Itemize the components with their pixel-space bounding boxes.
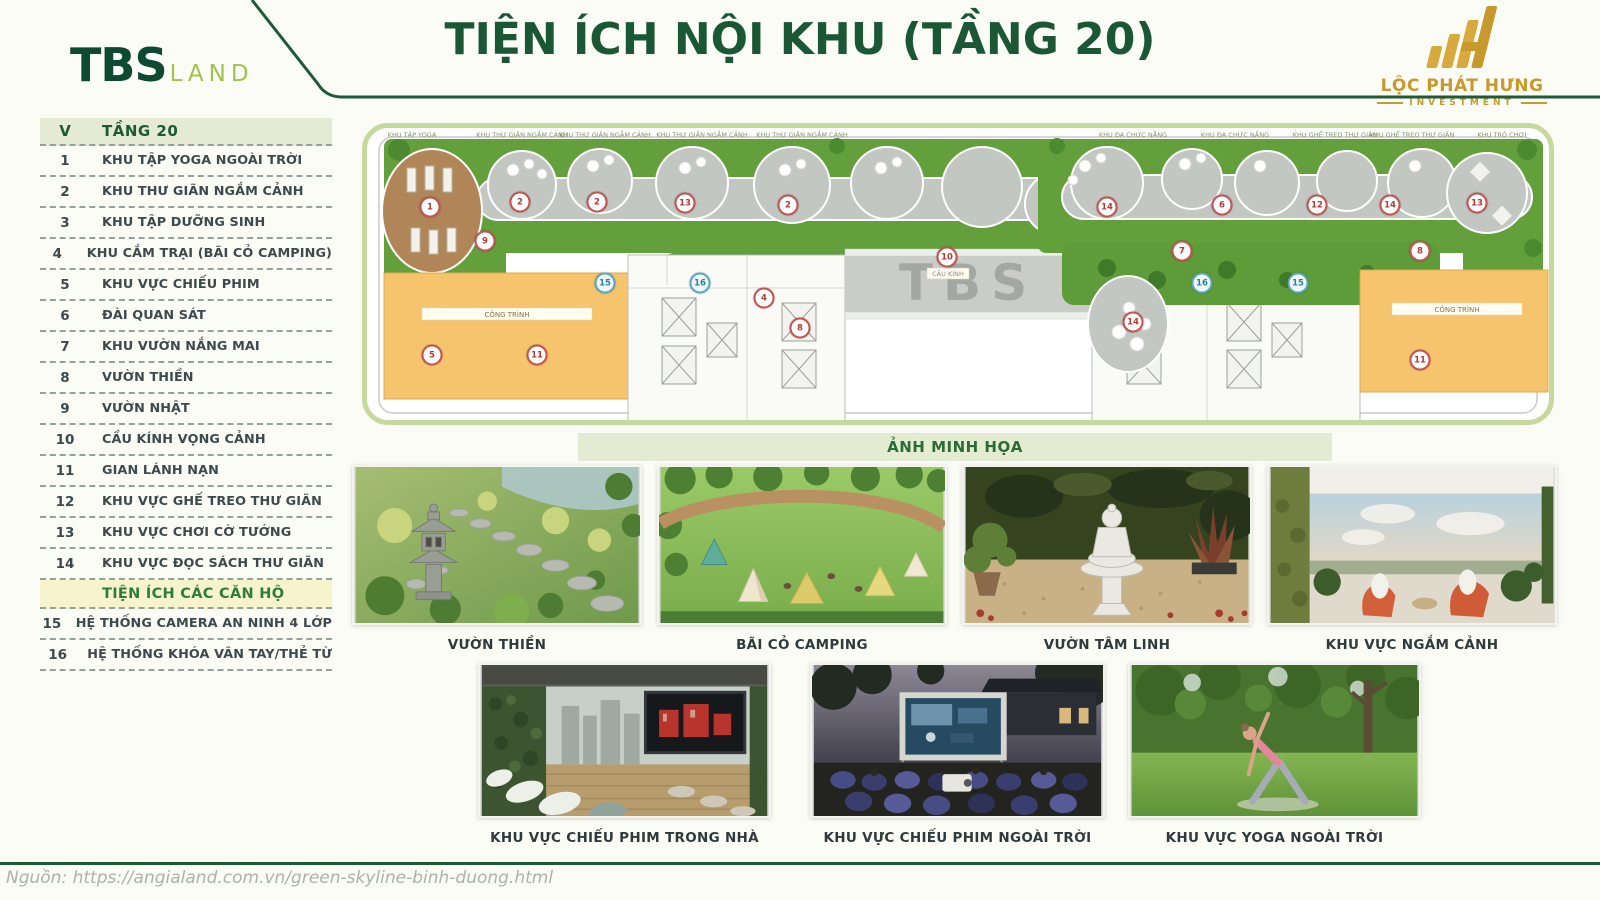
legend-item-7: 7KHU VƯỜN NẮNG MAI (40, 332, 332, 363)
plan-marker-7: 7 (1172, 241, 1193, 262)
plan-marker-13: 13 (675, 193, 696, 214)
legend-item-13: 13KHU VỰC CHƠI CỜ TƯỚNG (40, 518, 332, 549)
legend-item-label: CẦU KÍNH VỌNG CẢNH (102, 432, 266, 447)
legend-header-col1: V (40, 122, 90, 140)
buddha-garden-image (962, 465, 1252, 625)
amenities-legend: V TẦNG 20 1KHU TẬP YOGA NGOÀI TRỜI2KHU T… (40, 118, 332, 671)
legend-section-header: TIỆN ÍCH CÁC CĂN HỘ (40, 580, 332, 609)
plan-marker-10: 10 (937, 247, 958, 268)
plan-marker-8: 8 (790, 318, 811, 339)
plan-marker-12: 12 (1307, 195, 1328, 216)
plan-area-label: KHU ĐA CHỨC NĂNG (1201, 131, 1269, 139)
legend-item-3: 3KHU TẬP DƯỠNG SINH (40, 208, 332, 239)
legend-item-number: 6 (40, 308, 90, 324)
lph-dash-right (1521, 102, 1547, 104)
photo-caption: KHU VỰC CHIẾU PHIM TRONG NHÀ (478, 830, 771, 846)
legend-item-label: HỆ THỐNG CAMERA AN NINH 4 LỚP (76, 616, 332, 631)
plan-area-label: KHU THƯ GIÃN NGẮM CẢNH (656, 131, 748, 139)
legend-item-6: 6ĐÀI QUAN SÁT (40, 301, 332, 332)
plan-marker-2: 2 (778, 195, 799, 216)
zen-garden-image (352, 465, 642, 625)
plan-area-label: KHU THƯ GIÃN NGẮM CẢNH (559, 131, 651, 139)
plan-marker-11: 11 (1410, 350, 1431, 371)
legend-item-label: KHU THƯ GIÃN NGẮM CẢNH (102, 184, 304, 199)
legend-item-label: KHU TẬP DƯỠNG SINH (102, 215, 265, 230)
photo-caption: KHU VỰC YOGA NGOÀI TRỜI (1128, 830, 1421, 846)
legend-item-number: 14 (40, 556, 90, 572)
plan-area-label: KHU GHẾ TREO THƯ GIÃN (1370, 131, 1455, 139)
plan-marker-6: 6 (1212, 195, 1233, 216)
legend-item-11: 11GIAN LÁNH NẠN (40, 456, 332, 487)
legend-item-number: 4 (40, 246, 75, 262)
legend-item-9: 9VƯỜN NHẬT (40, 394, 332, 425)
legend-item-number: 12 (40, 494, 90, 510)
loc-phat-hung-logo: LỘC PHÁT HƯNG INVESTMENT (1362, 4, 1562, 108)
plan-area-label: KHU TRÒ CHƠI (1478, 131, 1527, 139)
svg-text:CÔNG TRÌNH: CÔNG TRÌNH (1435, 305, 1480, 314)
plan-marker-15: 15 (1288, 273, 1309, 294)
plan-marker-14: 14 (1380, 195, 1401, 216)
svg-text:CẦU KÍNH: CẦU KÍNH (932, 268, 964, 278)
floor-plan-drawing: CÔNG TRÌNH TBS CẦU KÍNH (367, 128, 1549, 420)
photo-outdoor-yoga: KHU VỰC YOGA NGOÀI TRỜI (1128, 663, 1421, 846)
lph-subtitle-text: INVESTMENT (1409, 98, 1514, 108)
photo-caption: KHU VỰC NGẮM CẢNH (1267, 637, 1557, 653)
plan-marker-14: 14 (1097, 197, 1118, 218)
legend-item-label: KHU VỰC GHẾ TREO THƯ GIÃN (102, 494, 322, 509)
legend-item-number: 10 (40, 432, 90, 448)
brochure-page: TBS LAND TIỆN ÍCH NỘI KHU (TẦNG 20) LỘC … (0, 0, 1600, 900)
plan-marker-2: 2 (587, 192, 608, 213)
legend-item-number: 3 (40, 215, 90, 231)
tbs-land-logo: TBS LAND (70, 38, 254, 92)
indoor-cinema-image (478, 663, 771, 818)
floor-plan-panel: CÔNG TRÌNH TBS CẦU KÍNH (362, 123, 1554, 425)
photo-camping-lawn: BÃI CỎ CAMPING (657, 465, 947, 653)
lph-logo-name: LỘC PHÁT HƯNG (1362, 76, 1562, 96)
camping-lawn-image (657, 465, 947, 625)
footer-rule (0, 862, 1600, 865)
legend-item-label: KHU CẮM TRẠI (BÃI CỎ CAMPING) (87, 246, 332, 261)
legend-item-label: KHU VỰC ĐỌC SÁCH THƯ GIÃN (102, 556, 324, 571)
plan-marker-1: 1 (420, 197, 441, 218)
page-title: TIỆN ÍCH NỘI KHU (TẦNG 20) (330, 14, 1270, 65)
legend-item-label: KHU VỰC CHIẾU PHIM (102, 277, 260, 292)
legend-item-number: 11 (40, 463, 90, 479)
view-lounge-image (1267, 465, 1557, 625)
legend-item-number: 16 (40, 647, 75, 663)
plan-marker-11: 11 (527, 345, 548, 366)
svg-text:TBS: TBS (899, 254, 1037, 312)
legend-item-label: ĐÀI QUAN SÁT (102, 308, 206, 323)
plan-marker-14: 14 (1123, 312, 1144, 333)
tbs-logo-subtext: LAND (170, 61, 254, 87)
legend-item-label: KHU TẬP YOGA NGOÀI TRỜI (102, 153, 302, 168)
legend-item-number: 15 (40, 616, 64, 632)
legend-item-2: 2KHU THƯ GIÃN NGẮM CẢNH (40, 177, 332, 208)
legend-item-label: VƯỜN THIỀN (102, 370, 194, 385)
outdoor-cinema-image (810, 663, 1105, 818)
outdoor-yoga-image (1128, 663, 1421, 818)
legend-header: V TẦNG 20 (40, 118, 332, 146)
legend-item-number: 8 (40, 370, 90, 386)
legend-item-number: 1 (40, 153, 90, 169)
legend-item-14: 14KHU VỰC ĐỌC SÁCH THƯ GIÃN (40, 549, 332, 580)
plan-area-label: KHU ĐA CHỨC NĂNG (1099, 131, 1167, 139)
photo-buddha-garden: VƯỜN TÂM LINH (962, 465, 1252, 653)
source-link-text[interactable]: Nguồn: https://angialand.com.vn/green-sk… (6, 868, 553, 888)
plan-area-label: KHU THƯ GIÃN NGẮM CẢNH (756, 131, 848, 139)
legend-rows: 1KHU TẬP YOGA NGOÀI TRỜI2KHU THƯ GIÃN NG… (40, 146, 332, 671)
legend-item-4: 4KHU CẮM TRẠI (BÃI CỎ CAMPING) (40, 239, 332, 270)
legend-item-label: VƯỜN NHẬT (102, 401, 190, 416)
plan-marker-9: 9 (475, 231, 496, 252)
plan-marker-16: 16 (1192, 273, 1213, 294)
legend-item-number: 7 (40, 339, 90, 355)
lph-dash-left (1377, 102, 1403, 104)
plan-marker-16: 16 (690, 273, 711, 294)
legend-item-label: GIAN LÁNH NẠN (102, 463, 219, 478)
legend-header-col2: TẦNG 20 (102, 122, 178, 140)
tbs-logo-text: TBS (70, 38, 167, 92)
legend-item-12: 12KHU VỰC GHẾ TREO THƯ GIÃN (40, 487, 332, 518)
svg-text:CÔNG TRÌNH: CÔNG TRÌNH (485, 310, 530, 319)
legend-item-8: 8VƯỜN THIỀN (40, 363, 332, 394)
illustration-band: ẢNH MINH HỌA (578, 433, 1332, 461)
legend-item-label: HỆ THỐNG KHÓA VÂN TAY/THẺ TỪ (87, 647, 332, 662)
legend-item-label: KHU VƯỜN NẮNG MAI (102, 339, 260, 354)
plan-marker-13: 13 (1467, 193, 1488, 214)
legend-item-5: 5KHU VỰC CHIẾU PHIM (40, 270, 332, 301)
photo-zen-garden: VƯỜN THIỀN (352, 465, 642, 653)
legend-item-number: 9 (40, 401, 90, 417)
legend-item-label: KHU VỰC CHƠI CỜ TƯỚNG (102, 525, 291, 540)
plan-marker-5: 5 (422, 345, 443, 366)
plan-area-label: KHU THƯ GIÃN NGẮM CẢNH (476, 131, 568, 139)
photo-view-lounge: KHU VỰC NGẮM CẢNH (1267, 465, 1557, 653)
legend-item-15: 15HỆ THỐNG CAMERA AN NINH 4 LỚP (40, 609, 332, 640)
photo-caption: VƯỜN THIỀN (352, 637, 642, 653)
plan-marker-4: 4 (754, 288, 775, 309)
legend-item-16: 16HỆ THỐNG KHÓA VÂN TAY/THẺ TỪ (40, 640, 332, 671)
plan-area-label: KHU GHẾ TREO THƯ GIÃN (1293, 131, 1378, 139)
lph-logo-subtitle: INVESTMENT (1362, 98, 1562, 108)
photo-caption: KHU VỰC CHIẾU PHIM NGOÀI TRỜI (810, 830, 1105, 846)
bar-chart-monogram-icon (1416, 4, 1508, 70)
photo-caption: BÃI CỎ CAMPING (657, 637, 947, 653)
plan-marker-8: 8 (1410, 241, 1431, 262)
photo-outdoor-cinema: KHU VỰC CHIẾU PHIM NGOÀI TRỜI (810, 663, 1105, 846)
plan-marker-2: 2 (510, 192, 531, 213)
legend-item-number: 5 (40, 277, 90, 293)
legend-item-10: 10CẦU KÍNH VỌNG CẢNH (40, 425, 332, 456)
photo-caption: VƯỜN TÂM LINH (962, 637, 1252, 653)
plan-area-label: KHU TẬP YOGA (388, 131, 437, 139)
legend-item-number: 2 (40, 184, 90, 200)
legend-item-1: 1KHU TẬP YOGA NGOÀI TRỜI (40, 146, 332, 177)
plan-marker-15: 15 (595, 273, 616, 294)
photo-indoor-cinema: KHU VỰC CHIẾU PHIM TRONG NHÀ (478, 663, 771, 846)
legend-item-number: 13 (40, 525, 90, 541)
